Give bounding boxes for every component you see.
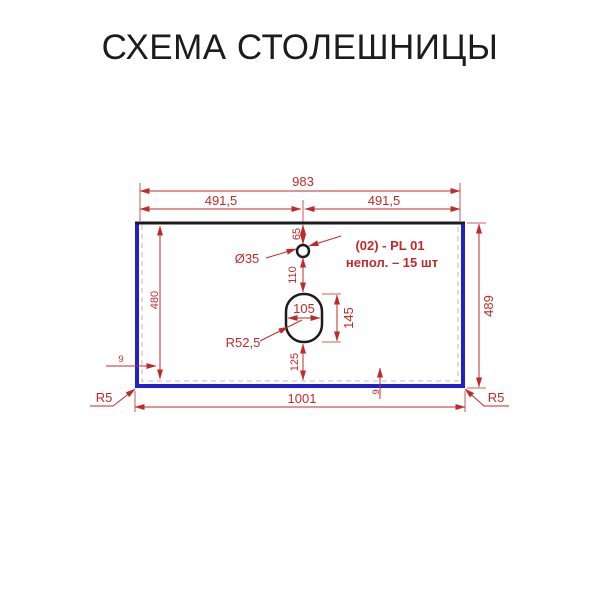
dim-label-480: 480 bbox=[149, 291, 161, 309]
dim-label-d35: Ø35 bbox=[235, 251, 260, 266]
dim-top-total: 983 bbox=[140, 174, 460, 221]
dim-label-r52: R52,5 bbox=[226, 335, 261, 350]
countertop-diagram: 983 491,5 491,5 65 Ø35 (02) - PL 01 непо… bbox=[0, 0, 600, 600]
dim-outer-width: 1001 bbox=[135, 391, 465, 412]
dim-top-halves: 491,5 491,5 bbox=[140, 193, 460, 222]
dim-label-125: 125 bbox=[289, 353, 301, 371]
dim-label-r5-left: R5 bbox=[96, 390, 113, 405]
dim-label-491-left: 491,5 bbox=[205, 193, 238, 208]
dim-label-105: 105 bbox=[293, 301, 315, 316]
dim-label-145: 145 bbox=[341, 307, 356, 329]
dim-label-110: 110 bbox=[287, 266, 299, 284]
dim-label-491-right: 491,5 bbox=[368, 193, 401, 208]
dim-label-1001: 1001 bbox=[288, 391, 317, 406]
dim-label-983: 983 bbox=[292, 174, 314, 189]
dim-label-9-bottom: 9 bbox=[371, 389, 382, 394]
note-line2: непол. – 15 шт bbox=[346, 255, 438, 270]
dim-label-9-left: 9 bbox=[118, 354, 123, 365]
callout-corner-left: R5 bbox=[90, 389, 135, 406]
dim-outer-height: 489 bbox=[467, 223, 496, 388]
dim-label-489: 489 bbox=[481, 295, 496, 317]
dim-label-65: 65 bbox=[291, 228, 303, 240]
note-line1: (02) - PL 01 bbox=[355, 238, 424, 253]
hole-circle bbox=[297, 245, 309, 257]
faucet-hole bbox=[297, 245, 309, 257]
dim-label-r5-right: R5 bbox=[488, 390, 505, 405]
callout-corner-right: R5 bbox=[465, 389, 509, 406]
